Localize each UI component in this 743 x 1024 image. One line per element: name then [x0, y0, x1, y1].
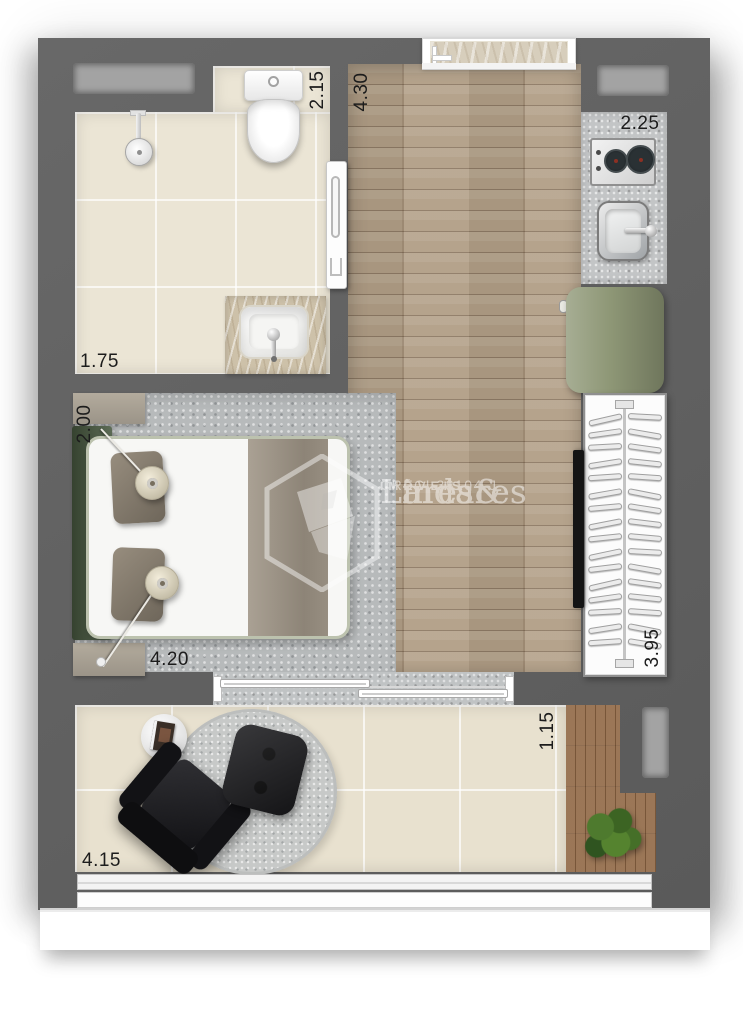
refrigerator [566, 287, 664, 393]
tv-panel [573, 450, 584, 608]
hanger [588, 608, 622, 616]
hanger [588, 548, 623, 561]
hanger [588, 443, 622, 451]
hanger [588, 428, 623, 439]
hanger [628, 578, 663, 589]
balcony-wood-deck [566, 705, 620, 795]
balcony-glass-railing [77, 892, 652, 908]
cooktop [590, 138, 656, 186]
hanger [628, 473, 662, 481]
hanger [627, 428, 662, 440]
entry-door-handle [432, 55, 452, 61]
hanger [628, 458, 662, 468]
hanger [628, 518, 662, 528]
toilet-flush-button [268, 76, 279, 87]
entry-door-sill [422, 63, 576, 70]
balcony-door-glass-panel [220, 679, 370, 688]
bed-runner [248, 439, 328, 636]
hanger [588, 458, 623, 469]
balcony-glass-railing [77, 874, 652, 890]
bathroom-faucet-head [267, 328, 280, 341]
hanger [588, 503, 622, 512]
hanger [628, 608, 662, 616]
hanger [628, 413, 662, 421]
dim-bedroom-length: 4.20 [150, 650, 194, 670]
dim-balcony-length: 4.15 [82, 851, 126, 871]
hanger [628, 533, 662, 542]
dim-bathroom-length: 2.15 [308, 68, 328, 112]
dim-closet-length: 3.95 [643, 626, 663, 670]
pendant-lamp-anchor [96, 657, 106, 667]
hanger [588, 533, 622, 543]
cooktop-knob [596, 150, 601, 155]
hanger [588, 518, 623, 530]
kitchen-faucet-knob [645, 225, 657, 237]
hanger [588, 488, 623, 500]
cooktop-burner [626, 145, 655, 174]
hanger [627, 488, 662, 500]
toilet-bowl [247, 99, 300, 163]
dim-bathroom-width: 1.75 [80, 352, 124, 372]
balcony-wall-niche [642, 707, 669, 778]
hanger [588, 413, 622, 426]
hanger [628, 503, 663, 514]
bathroom-door-latch [330, 258, 342, 276]
hanger [588, 563, 622, 573]
hanger [588, 638, 622, 646]
hanger [628, 593, 662, 603]
shower-head [125, 138, 153, 166]
bathroom-door-handle [331, 176, 340, 238]
hanger [588, 473, 622, 481]
cooktop-knob [596, 166, 601, 171]
hanger [628, 548, 662, 556]
double-bed [86, 436, 350, 639]
hanger [588, 593, 623, 604]
balcony-parapet [40, 908, 710, 950]
bathroom-sliding-door [326, 161, 347, 289]
hanger [628, 443, 663, 454]
dim-bedroom-width: 2.00 [75, 402, 95, 446]
bathroom-faucet-base [271, 356, 277, 362]
dim-kitchen-length: 2.25 [618, 114, 662, 134]
dim-balcony-depth: 1.15 [538, 709, 558, 753]
potted-plant [580, 804, 644, 864]
kitchen-window [597, 65, 669, 96]
dim-living-length: 4.30 [352, 70, 372, 114]
bathroom-window [73, 63, 195, 94]
nightstand [73, 643, 145, 676]
shower-arm [136, 113, 141, 141]
floorplan-canvas: 1.75 2.15 4.30 2.25 2.00 4.20 3.95 1.15 … [0, 0, 743, 1024]
hanger [588, 623, 623, 634]
hanger [588, 578, 622, 591]
pendant-lamp [135, 466, 169, 500]
hanger [627, 563, 662, 575]
cooktop-burner [604, 149, 628, 173]
pendant-lamp [145, 566, 179, 600]
balcony-door-glass-panel [358, 689, 508, 698]
